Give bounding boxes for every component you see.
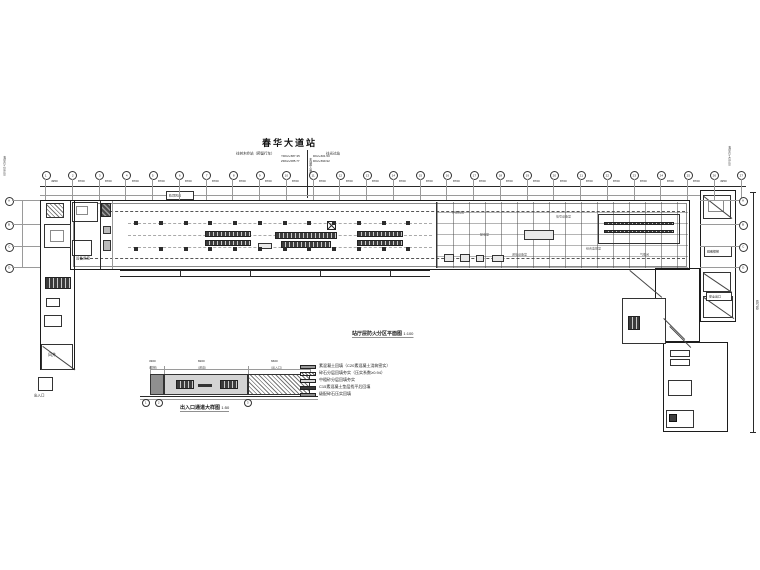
column — [357, 221, 361, 225]
grid-axis-bubble: 15 — [416, 171, 425, 180]
exit-label-box: 安全出口 — [706, 292, 732, 301]
grid-axis-line — [700, 224, 739, 225]
grid-axis-tick — [72, 179, 73, 200]
legend-swatch — [300, 379, 316, 384]
legend-label: 碎石分层回填夯实（压实系数≥0.94） — [319, 370, 385, 376]
detail-caption: 出入口通道大样图 1:50 — [180, 403, 229, 412]
grid-axis-bubble: 10 — [282, 171, 291, 180]
bay-dimension: 8700 — [586, 180, 593, 183]
legend-swatch — [300, 372, 316, 377]
grid-axis-line — [12, 267, 40, 268]
dimension-tick — [750, 192, 756, 193]
column — [233, 221, 237, 225]
column — [208, 247, 212, 251]
legend-swatch — [300, 386, 316, 391]
grid-axis-bubble: 3 — [95, 171, 104, 180]
grid-axis-tick — [687, 179, 688, 200]
equipment-box — [492, 255, 504, 262]
room-label: 信号设备室 — [556, 214, 571, 219]
grid-axis-line — [700, 267, 739, 268]
detail-axis-bubble: 2 — [155, 399, 163, 407]
grid-axis-tick — [473, 179, 474, 200]
mileage-right-1: DK2+601.50 — [313, 155, 330, 158]
top-dimension-line-2 — [40, 195, 700, 196]
column — [382, 247, 386, 251]
legend-label: 级配碎石压实回填 — [319, 391, 351, 397]
ceiling-grid-dash — [128, 223, 432, 224]
grid-axis-tick — [232, 179, 233, 200]
bay-dimension: 8700 — [265, 180, 272, 183]
bay-dimension: 8700 — [506, 180, 513, 183]
bay-dimension: 8700 — [667, 180, 674, 183]
grid-axis-tick — [45, 179, 46, 200]
plan-caption: 站厅层防火分区平面图 1:100 — [352, 329, 413, 338]
detail-dimension: 8200 — [198, 360, 205, 363]
left-edge-mileage: 右DK2+158.00 — [2, 156, 7, 176]
exit-label: 安全出口 — [709, 294, 721, 299]
grid-axis-tick — [206, 179, 207, 200]
grid-axis-bubble: 5 — [149, 171, 158, 180]
bay-dimension: 8700 — [132, 180, 139, 183]
grid-axis-bubble: 25 — [684, 171, 693, 180]
grid-axis-bubble: 6 — [175, 171, 184, 180]
detail-baseline-2 — [140, 399, 318, 400]
detail-dimension-note: (通道) — [198, 365, 206, 370]
grid-axis-tick — [607, 179, 608, 200]
legend-swatch — [300, 393, 316, 398]
detail-dim-tick — [164, 366, 165, 374]
column — [134, 221, 138, 225]
grid-axis-bubble: 7 — [202, 171, 211, 180]
band-tick — [250, 270, 251, 277]
grid-axis-bubble: A — [5, 197, 14, 206]
left-wing-room-inner — [50, 230, 64, 242]
column — [134, 247, 138, 251]
equipment-room-inner — [76, 206, 88, 215]
right-total-dimension: 65700 — [755, 300, 759, 310]
legend-label: C15素混凝土垫层找平后回填 — [319, 384, 370, 390]
grid-axis-bubble: 9 — [256, 171, 265, 180]
column — [258, 247, 262, 251]
detail-axis-bubble: 3 — [244, 399, 252, 407]
escalator-block — [45, 277, 71, 289]
escalator-block — [281, 241, 331, 248]
left-direction-note: 往树木岭站（预留行车） — [236, 151, 275, 156]
grid-axis-line — [12, 224, 40, 225]
grid-axis-tick — [500, 179, 501, 200]
plan-caption-text: 站厅层防火分区平面图 — [352, 331, 402, 337]
column — [382, 221, 386, 225]
detail-dim-tick — [248, 366, 249, 374]
room-label: 综合监控室 — [586, 246, 601, 251]
room-label: 配电室 — [480, 232, 489, 237]
bay-dimension: 8700 — [185, 180, 192, 183]
equipment-room — [72, 240, 92, 256]
grid-axis-tick — [553, 179, 554, 200]
top-note-box: 轨顶风道 — [166, 191, 194, 200]
legend-swatch — [300, 365, 316, 370]
bay-dimension: 8700 — [613, 180, 620, 183]
bay-dimension: 8700 — [292, 180, 299, 183]
grid-axis-tick — [527, 179, 528, 200]
bay-dimension: 8700 — [479, 180, 486, 183]
grid-axis-tick — [286, 179, 287, 200]
grid-axis-bubble: 12 — [336, 171, 345, 180]
bay-dimension: 8700 — [105, 180, 112, 183]
grid-axis-bubble: 23 — [630, 171, 639, 180]
detail-baseline — [140, 396, 318, 397]
column — [307, 247, 311, 251]
detail-stair-block — [176, 380, 194, 389]
column — [406, 247, 410, 251]
detail-dimension-note: (出入口) — [271, 365, 282, 370]
column — [283, 247, 287, 251]
detail-dimension-note: (楼梯) — [149, 365, 157, 370]
column — [332, 221, 336, 225]
grid-axis-tick — [179, 179, 180, 200]
detail-caption-scale: 1:50 — [221, 406, 229, 411]
entrance-label: 出入口 — [34, 393, 45, 398]
column — [357, 247, 361, 251]
bay-dimension: 8700 — [319, 180, 326, 183]
equipment-box — [476, 255, 484, 262]
stair-hatch-block — [101, 203, 111, 217]
grid-axis-bubble: 14 — [389, 171, 398, 180]
grid-axis-bubble: D — [739, 264, 748, 273]
grid-axis-bubble: 13 — [363, 171, 372, 180]
bay-dimension: 8700 — [239, 180, 246, 183]
bay-dimension: 8700 — [372, 180, 379, 183]
left-wing-box — [44, 315, 62, 327]
escalator-block — [275, 232, 337, 239]
column — [184, 247, 188, 251]
stair-label: 疏散楼梯 — [707, 249, 719, 254]
grid-axis-tick — [99, 179, 100, 200]
corridor-box — [670, 350, 690, 357]
escalator-block — [357, 240, 403, 246]
column — [283, 221, 287, 225]
column — [159, 221, 163, 225]
plan-caption-scale: 1:100 — [403, 332, 413, 337]
left-dimension-line — [22, 200, 23, 267]
ceiling-grid-dash — [128, 247, 432, 248]
grid-axis-bubble: 8 — [229, 171, 238, 180]
legend-label: 中粗砂分层回填夯实 — [319, 377, 355, 383]
left-room-label: 设备用房 — [76, 256, 90, 261]
bay-dimension: 8700 — [426, 180, 433, 183]
room-label: 环控机房 — [452, 210, 464, 215]
grid-axis-tick — [339, 179, 340, 200]
drawing-sheet: 春华大道站 往树木岭站（预留行车） 往光达站 YDK2+587.35 ZDK2+… — [0, 0, 760, 570]
detail-axis-bubble: 1 — [142, 399, 150, 407]
bay-dimension: 4950 — [720, 180, 727, 183]
dark-equipment-square — [669, 414, 677, 422]
equipment-box — [444, 254, 454, 262]
corridor-box — [670, 359, 690, 366]
grid-axis-line — [700, 200, 739, 201]
grid-axis-tick — [125, 179, 126, 200]
bay-dimension: 8700 — [78, 180, 85, 183]
room-label: 通信设备室 — [512, 252, 527, 257]
bay-dimension: 8700 — [346, 180, 353, 183]
bay-dimension: 8700 — [453, 180, 460, 183]
grid-axis-tick — [152, 179, 153, 200]
grid-axis-bubble: C — [739, 243, 748, 252]
grid-axis-line — [700, 246, 739, 247]
bay-dimension: 8700 — [693, 180, 700, 183]
air-handling-unit — [604, 230, 674, 233]
grid-axis-bubble: 24 — [657, 171, 666, 180]
grid-axis-bubble: B — [739, 221, 748, 230]
column — [258, 221, 262, 225]
grid-axis-tick — [366, 179, 367, 200]
grid-axis-bubble: 11 — [309, 171, 318, 180]
grid-axis-bubble: A — [739, 197, 748, 206]
detail-solid-block — [150, 374, 164, 395]
column — [233, 247, 237, 251]
escalator-block — [357, 231, 403, 237]
right-dimension-line — [753, 192, 754, 432]
detail-stair-block — [220, 380, 238, 389]
escalator-block — [205, 240, 251, 246]
shaft-box — [103, 240, 111, 251]
dimension-tick — [750, 432, 756, 433]
equipment-box — [460, 254, 470, 262]
detail-caption-text: 出入口通道大样图 — [180, 405, 220, 411]
stair-label-box: 疏散楼梯 — [704, 246, 732, 257]
left-wing-box — [46, 298, 60, 307]
lower-wall-band — [120, 270, 430, 277]
mileage-right-2: DK2+599.92 — [313, 160, 330, 163]
column — [307, 221, 311, 225]
mileage-left-1: YDK2+587.35 — [281, 155, 300, 158]
grid-axis-bubble: 2 — [68, 171, 77, 180]
band-tick — [390, 270, 391, 277]
equipment-block — [628, 316, 640, 330]
grid-axis-bubble: 4 — [122, 171, 131, 180]
grid-axis-bubble: 18 — [496, 171, 505, 180]
bay-dimension: 8700 — [640, 180, 647, 183]
ventilation-plant-room — [598, 214, 680, 244]
mileage-left-2: ZDK2+585.77 — [281, 160, 300, 163]
bay-dimension: 8700 — [560, 180, 567, 183]
room-label: 气瓶间 — [640, 252, 649, 257]
detail-arrow — [198, 384, 212, 387]
grid-axis-tick — [634, 179, 635, 200]
column — [406, 221, 410, 225]
grid-axis-bubble: 26 — [710, 171, 719, 180]
station-title: 春华大道站 — [262, 136, 317, 149]
column — [208, 221, 212, 225]
partition-wall — [112, 201, 113, 269]
shaft-box — [103, 226, 111, 234]
detail-dimension: 6600 — [271, 360, 278, 363]
grid-axis-bubble: 22 — [603, 171, 612, 180]
detail-dimension: 3300 — [149, 360, 156, 363]
corridor-room — [668, 380, 692, 396]
bay-dimension: 4950 — [51, 180, 58, 183]
grid-axis-tick — [580, 179, 581, 200]
grid-axis-bubble: 1 — [42, 171, 51, 180]
bay-dimension: 8700 — [212, 180, 219, 183]
detail-dim-line — [150, 369, 310, 370]
bay-dimension: 8700 — [399, 180, 406, 183]
right-edge-mileage: 右DK2+425.00 — [727, 146, 732, 166]
band-tick — [180, 270, 181, 277]
grid-axis-bubble: 16 — [443, 171, 452, 180]
column — [159, 247, 163, 251]
grid-axis-bubble: 19 — [523, 171, 532, 180]
grid-axis-tick — [420, 179, 421, 200]
grid-axis-line — [12, 200, 40, 201]
grid-axis-tick — [313, 179, 314, 200]
grid-axis-tick — [393, 179, 394, 200]
column — [184, 221, 188, 225]
shaft-label: 风井 — [48, 352, 56, 358]
bay-dimension: 8700 — [158, 180, 165, 183]
grid-axis-bubble: D — [5, 264, 14, 273]
escalator-block — [205, 231, 251, 237]
air-handling-unit — [604, 222, 674, 225]
grid-axis-tick — [714, 179, 715, 200]
grid-axis-tick — [259, 179, 260, 200]
grid-axis-line — [12, 246, 40, 247]
grid-axis-bubble: 27 — [737, 171, 746, 180]
grid-axis-tick — [660, 179, 661, 200]
grid-axis-bubble: 21 — [577, 171, 586, 180]
band-tick — [320, 270, 321, 277]
equipment-box — [524, 230, 554, 240]
entrance-box — [38, 377, 53, 391]
grid-axis-bubble: 20 — [550, 171, 559, 180]
column — [332, 247, 336, 251]
grid-axis-bubble: B — [5, 221, 14, 230]
bay-dimension: 8700 — [533, 180, 540, 183]
grid-axis-bubble: 17 — [470, 171, 479, 180]
grid-axis-bubble: C — [5, 243, 14, 252]
legend-label: 素混凝土回填（C20素混凝土浇筑密实） — [319, 363, 390, 369]
grid-axis-tick — [446, 179, 447, 200]
stair-block — [46, 203, 64, 218]
